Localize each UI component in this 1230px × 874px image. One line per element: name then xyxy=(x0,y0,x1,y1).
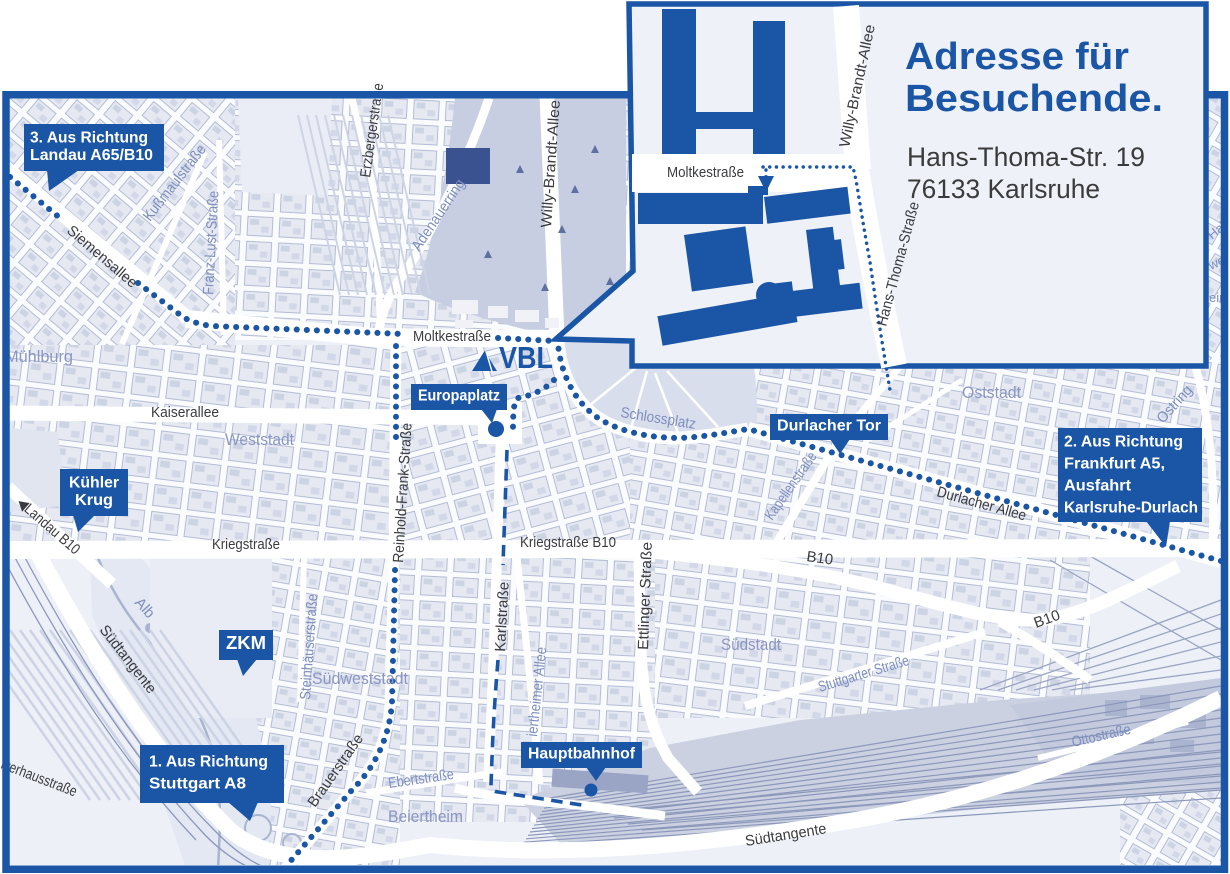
svg-text:Adresse für: Adresse für xyxy=(905,36,1129,78)
svg-text:Karlsruhe-Durlach: Karlsruhe-Durlach xyxy=(1064,499,1198,516)
svg-text:Besuchende.: Besuchende. xyxy=(905,78,1163,120)
svg-text:Südstadt: Südstadt xyxy=(721,635,781,654)
svg-text:ZKM: ZKM xyxy=(226,633,266,653)
svg-text:Beiertheim: Beiertheim xyxy=(388,807,463,826)
svg-text:Kriegstraße B10: Kriegstraße B10 xyxy=(520,534,616,551)
svg-text:Kaiserallee: Kaiserallee xyxy=(151,404,219,421)
svg-text:Ausfahrt: Ausfahrt xyxy=(1064,477,1132,494)
svg-text:Oststadt: Oststadt xyxy=(962,383,1021,402)
svg-text:Hans-Thoma-Str. 19: Hans-Thoma-Str. 19 xyxy=(907,142,1145,172)
svg-text:76133 Karlsruhe: 76133 Karlsruhe xyxy=(907,174,1100,204)
svg-text:Moltkestraße: Moltkestraße xyxy=(413,328,491,345)
svg-text:Durlacher Tor: Durlacher Tor xyxy=(777,417,881,434)
svg-text:1. Aus Richtung: 1. Aus Richtung xyxy=(149,753,268,770)
svg-text:Mühlburg: Mühlburg xyxy=(5,347,73,366)
svg-text:2. Aus Richtung: 2. Aus Richtung xyxy=(1064,433,1183,450)
svg-text:Landau A65/B10: Landau A65/B10 xyxy=(30,147,153,164)
svg-text:Kriegstraße: Kriegstraße xyxy=(212,536,280,553)
svg-text:3. Aus Richtung: 3. Aus Richtung xyxy=(30,129,148,146)
svg-text:Stuttgart A8: Stuttgart A8 xyxy=(149,775,246,792)
svg-text:Frankfurt A5,: Frankfurt A5, xyxy=(1064,455,1165,472)
svg-text:Kühler: Kühler xyxy=(69,474,119,491)
svg-text:Moltkestraße: Moltkestraße xyxy=(667,164,744,181)
svg-text:Südweststadt: Südweststadt xyxy=(312,669,408,688)
svg-text:VBL: VBL xyxy=(499,340,553,375)
svg-text:Weststadt: Weststadt xyxy=(225,430,294,449)
svg-text:Hauptbahnhof: Hauptbahnhof xyxy=(528,745,636,762)
svg-text:Krug: Krug xyxy=(75,492,113,509)
svg-text:Europaplatz: Europaplatz xyxy=(418,387,500,404)
